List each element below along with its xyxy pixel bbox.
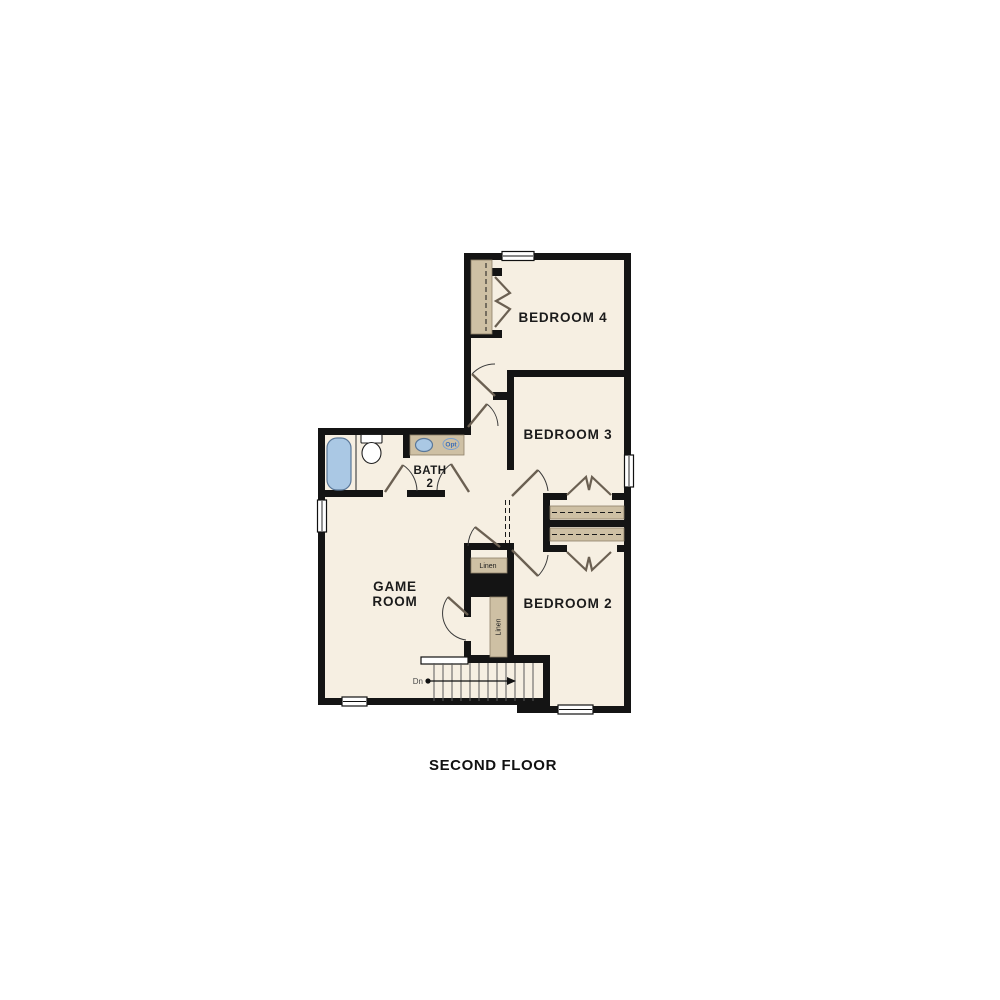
wall-bath-south1 <box>318 490 383 497</box>
wall-closet-mid <box>550 520 624 527</box>
gameroom-label-line2: ROOM <box>372 594 417 609</box>
window-gameroom-bottom <box>342 697 367 706</box>
bath2-label-line1: BATH <box>413 465 446 477</box>
window-bed4-top <box>502 252 534 261</box>
wall-left-lower <box>318 428 325 705</box>
wall-bath-top <box>318 428 471 435</box>
wall-bed2-west <box>507 543 514 663</box>
linen-upper-label: Linen <box>479 563 496 570</box>
bath2-label-line2: 2 <box>427 478 434 490</box>
wall-bath-mid <box>403 435 410 458</box>
plan-title: SECOND FLOOR <box>429 757 557 774</box>
wall-linen-left-upper <box>464 543 471 573</box>
stair-direction-dot <box>425 678 430 683</box>
wall-bath-south2 <box>407 490 445 497</box>
wall-bed3-west <box>507 370 514 470</box>
sink <box>416 439 433 452</box>
wall-linen-block <box>464 573 507 597</box>
toilet-bowl <box>362 443 381 464</box>
wall-closet-bottom-right <box>617 545 631 552</box>
floor-plan-drawing: Opt Dn BEDROOM 4 BEDROOM 3 BEDROOM 2 GAM… <box>0 0 1000 1000</box>
wall-bed4-door-stub <box>493 392 514 400</box>
window-bed2-bottom <box>558 705 593 714</box>
wall-bed3-bottom-right <box>612 493 631 500</box>
wall-closet-bottom-left <box>543 545 567 552</box>
floor-plan-page: Opt Dn BEDROOM 4 BEDROOM 3 BEDROOM 2 GAM… <box>0 0 1000 1000</box>
bedroom2-label: BEDROOM 2 <box>524 596 613 611</box>
wall-bed4-bed3-divider <box>507 370 631 377</box>
linen-lower-label: Linen <box>496 618 503 635</box>
window-bed3-right <box>625 455 634 487</box>
wall-closet-west <box>543 493 550 552</box>
wall-stair-right <box>543 663 550 704</box>
toilet-tank <box>361 435 382 444</box>
wall-left-upper <box>464 253 471 435</box>
window-gameroom-left <box>318 500 327 532</box>
bedroom3-label: BEDROOM 3 <box>524 427 613 442</box>
stairs-down-label: Dn <box>413 677 423 686</box>
bed4-closet-shelf <box>471 260 492 334</box>
gameroom-label-line1: GAME <box>373 579 417 594</box>
wall-top <box>464 253 631 260</box>
opt-icon-label: Opt <box>445 442 457 449</box>
bedroom4-label: BEDROOM 4 <box>519 310 608 325</box>
bathtub <box>327 438 351 490</box>
stair-railing <box>421 657 468 664</box>
